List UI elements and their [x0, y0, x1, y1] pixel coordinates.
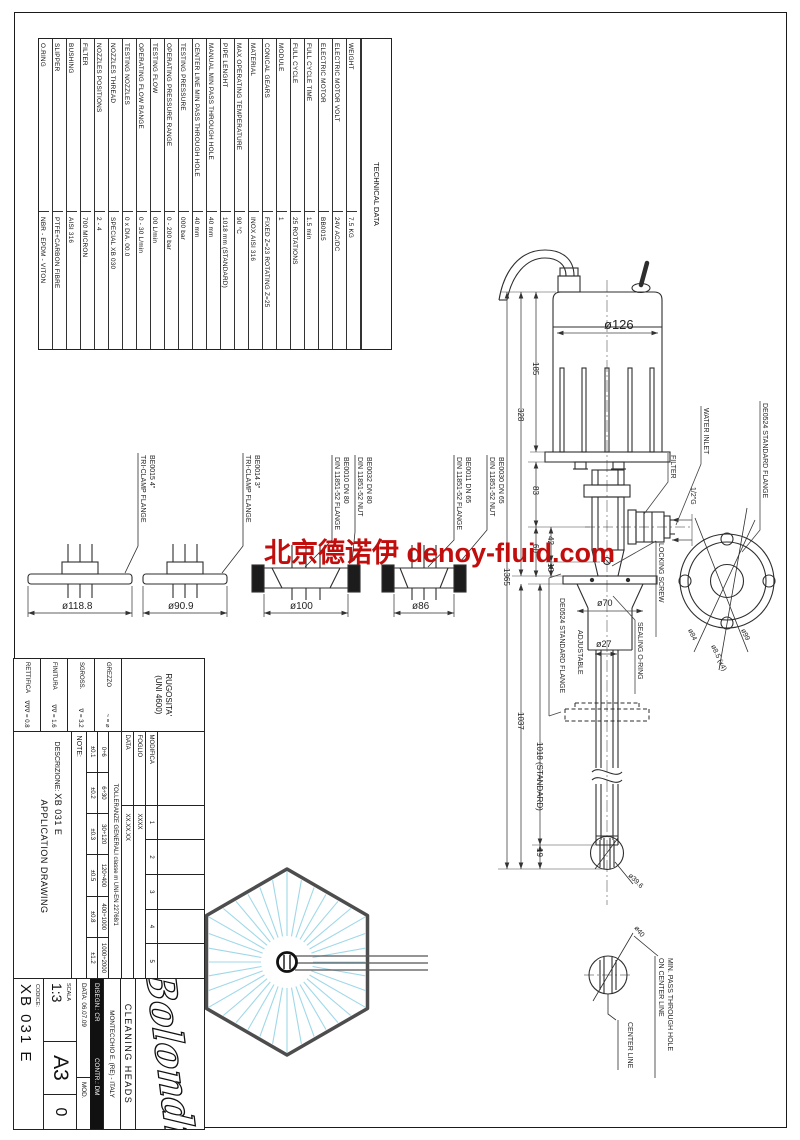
flange-circular-view [679, 508, 775, 670]
description-block: DESCRIZIONE: XB 031 E APPLICATION DRAWIN… [14, 732, 71, 978]
description-value: XB 031 E [53, 793, 63, 835]
dim-1018: 1018 (STANDARD) [535, 742, 544, 811]
scale-label: SCALA [65, 983, 71, 1041]
dim-sphere-diameter: ø39.6 [627, 872, 645, 890]
rugosita-line2: (UNI 4600) [153, 675, 163, 714]
scale-row: SCALA 1:3 A3 0 [43, 979, 76, 1129]
spray-pattern [207, 869, 429, 1055]
locking-screw-label: LOCKING SCREW [657, 543, 664, 603]
water-inlet-label: WATER INLET [702, 408, 709, 455]
drawing-page: O.RING NBR - EPDM - VITON SLIPPER PTFE+C… [0, 0, 800, 1140]
tolerance-title: TOLLERANZE GENERALI classe m UNI-EN 2276… [108, 732, 121, 978]
code-row: CODICE: XB 031 E [14, 979, 43, 1129]
description-label: DESCRIZIONE: [53, 742, 60, 792]
note-row: NOTE: [71, 732, 86, 978]
roughness-row: GREZZO~ = ⌀ [94, 659, 121, 731]
dim-1365: 1365 [502, 568, 511, 586]
mod-value: 0 [44, 1095, 76, 1129]
flange-3-nut-type: DIN 11851-52 NUT [356, 457, 363, 517]
paper-format: A3 [44, 1042, 76, 1095]
company-logo: Bolondi [135, 979, 204, 1129]
roughness-row: RETTIFICA∇∇∇ = 0.8 [14, 659, 40, 731]
flange-bolt-circle-dim: ø84 [686, 628, 697, 642]
dim-83: 83 [531, 486, 540, 495]
roughness-table: RUGOSITA' (UNI 4600) GREZZO~ = ⌀ SGROSS.… [14, 659, 204, 732]
flange-2-drawing [143, 453, 243, 617]
flange-1-drawing [28, 453, 138, 617]
flange-3-id: BE0010 DN 80 [342, 457, 349, 504]
flange-2-id: BE0014 3" [253, 455, 260, 489]
flange-3-nut-id: BE0032 DN 80 [365, 457, 372, 504]
flange-4-nut-id: BE0030 DN 65 [497, 457, 504, 504]
detail-label-line2: ON CENTER LINE [657, 958, 664, 1017]
sealing-oring-label: SEALING O-RING [636, 622, 643, 680]
modifica-row: MODIFICA 1 2 3 4 5 [146, 732, 158, 978]
watermark-text: 北京德诺伊 denoy-fluid.com [264, 531, 615, 570]
roughness-row: FINITURA∇∇ = 1.6 [40, 659, 67, 731]
title-block-right: Bolondi CLEANING HEADS MONTECCHIO E. (RE… [14, 979, 204, 1129]
description-line2: APPLICATION DRAWING [36, 742, 50, 978]
company-tagline: CLEANING HEADS [120, 979, 135, 1129]
code-label: CODICE: [34, 984, 40, 1129]
scale-value: 1:3 [49, 983, 65, 1041]
date-mod-row: DATA: 06.07.09 MOD. [76, 979, 90, 1129]
filter-label: FILTER [669, 455, 676, 479]
tolerance-values: ±0.1 ±0.2 ±0.3 ±0.5 ±0.8 ±1.2 [86, 732, 97, 978]
revision-table: MODIFICA 1 2 3 4 5 FOGLIO XXXX DATA XX.X… [121, 732, 204, 978]
rugosita-line1: RUGOSITA' [163, 673, 173, 716]
drawing-date: DATA: 06.07.09 [77, 979, 90, 1078]
dim-1037: 1037 [516, 712, 525, 730]
pass-through-detail [584, 933, 658, 1078]
detail-label-line1: MIN. PASS THROUGH HOLE [666, 958, 673, 1051]
thread-size-label: 1/2"G [689, 487, 696, 505]
flange-4-id: BE0011 DN 65 [464, 457, 471, 503]
code-value: XB 031 E [17, 984, 34, 1129]
rugosita-header: RUGOSITA' (UNI 4600) [121, 659, 204, 731]
dim-185: 185 [531, 362, 540, 376]
flange-4-nut-type: DIN 11851-52 NUT [488, 457, 495, 517]
roughness-row: SGROSS.∇ = 3.2 [67, 659, 94, 731]
company-address: MONTECCHIO E. (RE) - ITALY [103, 979, 120, 1129]
dim-328: 328 [516, 408, 525, 422]
flange-1-type: TRI-CLAMP FLANGE [139, 455, 146, 523]
flange-4-type: DIN 11851-52 FLANGE [455, 457, 462, 530]
dim-head-diameter: ø70 [597, 598, 613, 608]
flange-hole-dim: ø8.5 (x4) [709, 644, 727, 672]
dim-motor-diameter: ø126 [604, 317, 634, 332]
flange-3-type: DIN 11851-52 FLANGE [333, 457, 340, 530]
title-block: RUGOSITA' (UNI 4600) GREZZO~ = ⌀ SGROSS.… [13, 658, 205, 1130]
adjustable-flange-label: DE0524 STANDARD FLANGE [558, 598, 565, 694]
flange-1-diameter: ø118.8 [62, 601, 93, 612]
standard-flange-label: DE0524 STANDARD FLANGE [761, 403, 768, 499]
mod-label: MOD. [77, 1078, 90, 1129]
title-block-middle: MODIFICA 1 2 3 4 5 FOGLIO XXXX DATA XX.X… [14, 732, 204, 979]
spray-nozzle-head [278, 953, 297, 972]
flange-3-diameter: ø100 [290, 601, 313, 612]
flange-1-id: BE0015 4" [148, 455, 155, 489]
drawn-by: DISEGN.: CR [90, 979, 103, 1054]
tolerance-ranges: 0÷6 6÷30 30÷120 120÷400 400÷1000 1000÷20… [97, 732, 108, 978]
flange-4-diameter: ø86 [412, 601, 430, 612]
checked-by: CONTR.: DM [90, 1054, 103, 1129]
flange-2-diameter: ø90.9 [168, 601, 194, 612]
dim-pipe-diameter: ø27 [596, 639, 612, 649]
center-line-label: CENTER LINE [626, 1022, 633, 1069]
drawn-checked-row: DISEGN.: CR CONTR.: DM [90, 979, 103, 1129]
foglio-row: FOGLIO XXXX [134, 732, 146, 978]
dim-19: 19 [535, 848, 544, 857]
data-row: DATA XX.XX.XX [122, 732, 134, 978]
adjustable-label: ADJUSTABLE [576, 630, 583, 675]
flange-2-type: TRI-CLAMP FLANGE [244, 455, 251, 523]
